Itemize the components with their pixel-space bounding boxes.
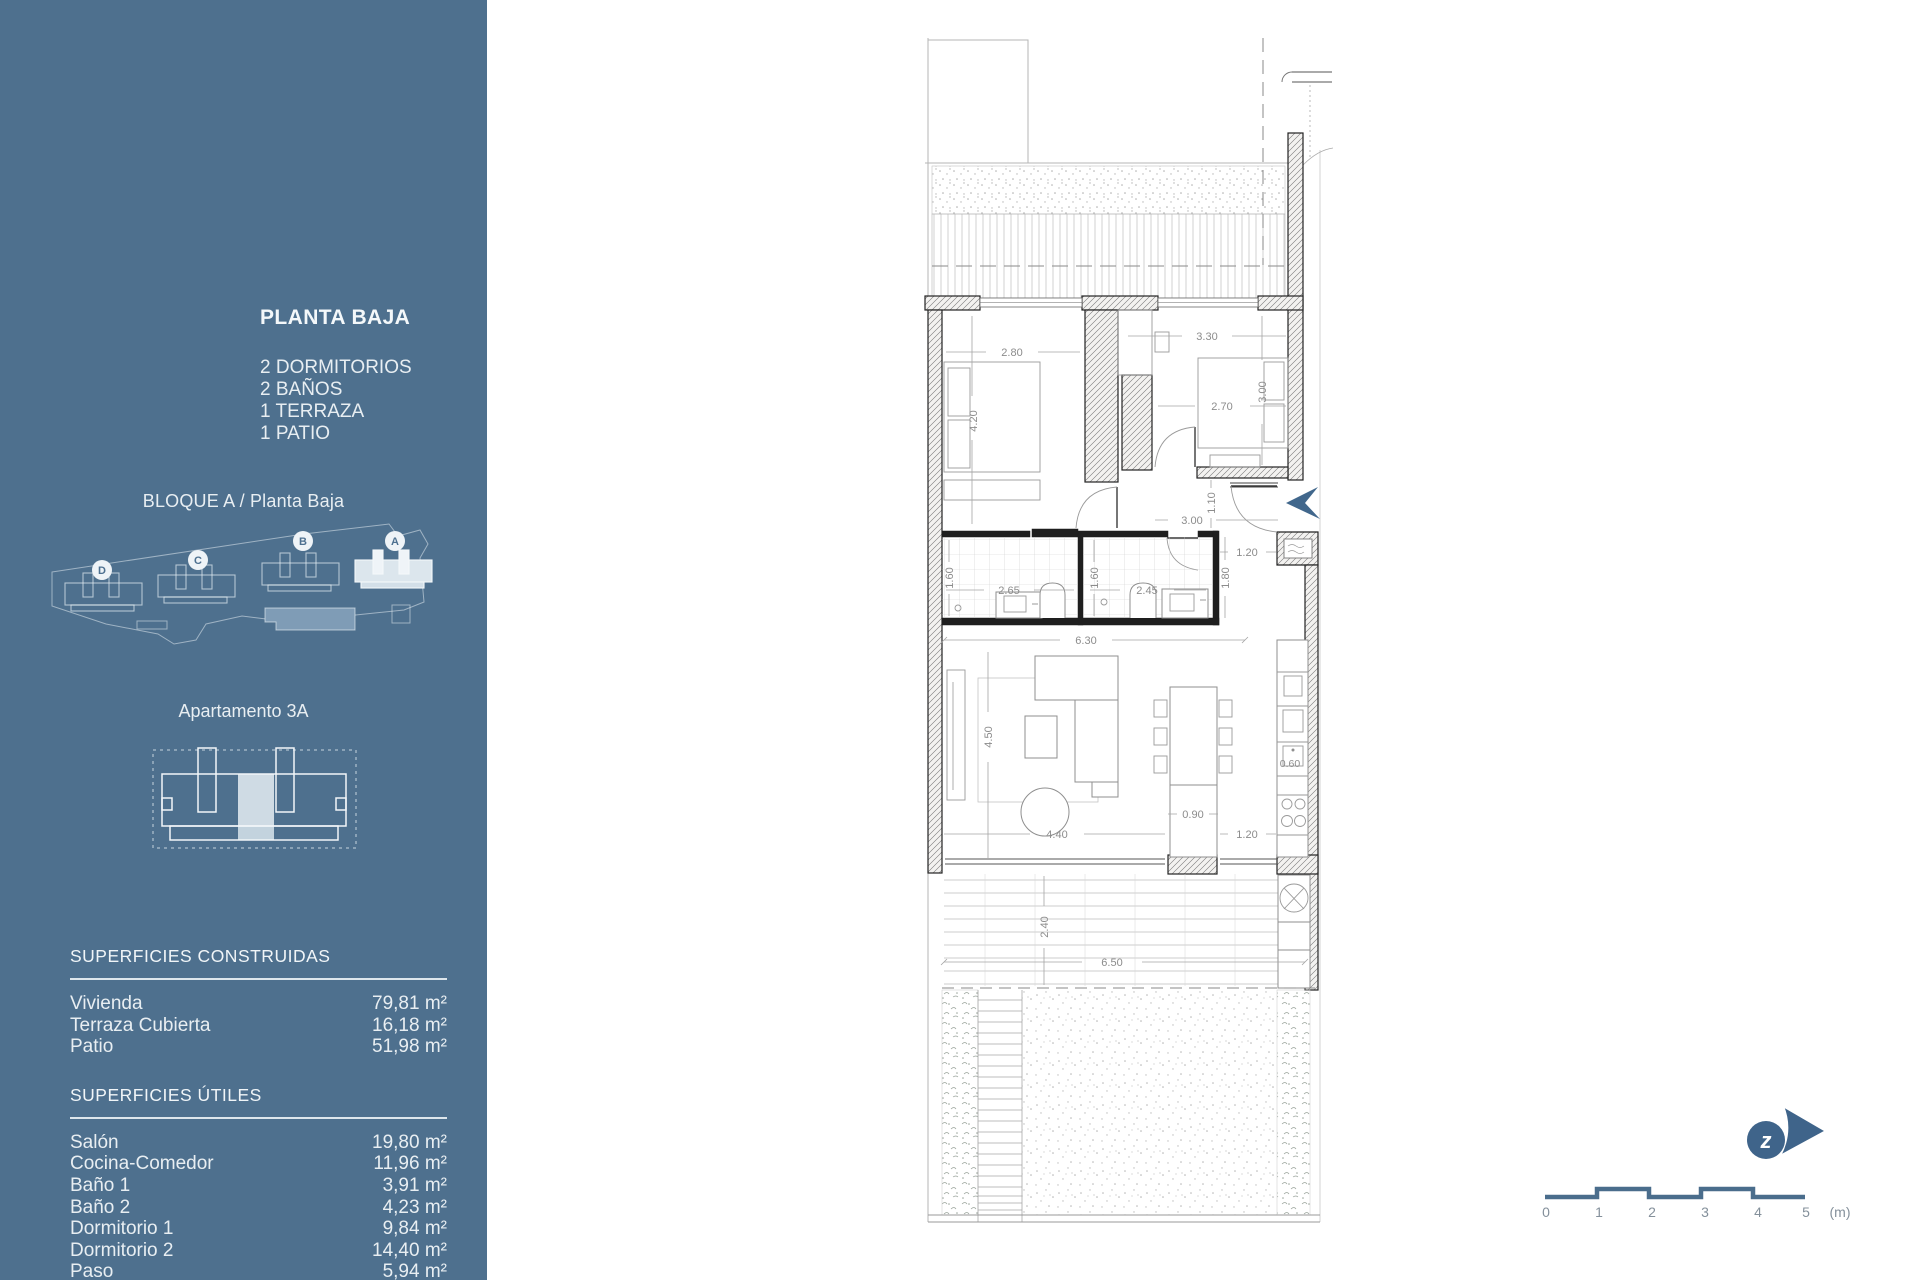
row-label: Dormitorio 1: [70, 1218, 173, 1240]
block-a-highlighted: [355, 550, 432, 588]
row-value: 4,23 m²: [383, 1197, 447, 1219]
section-heading-utiles: SUPERFICIES ÚTILES: [70, 1085, 447, 1119]
row-value: 19,80 m²: [372, 1132, 447, 1154]
dimension-label: 2.80: [1001, 347, 1022, 359]
shelf-bedroom1: [1155, 332, 1169, 352]
kitchen-island: [1170, 785, 1217, 857]
block-badge-d: D: [98, 565, 106, 577]
dimension-label: 1.80: [1220, 567, 1232, 588]
row-label: Salón: [70, 1132, 119, 1154]
dimension-label: 0.90: [1182, 809, 1203, 821]
surface-tables: SUPERFICIES CONSTRUIDAS Vivienda 79,81 m…: [70, 946, 447, 1283]
dimension-label: 2.40: [1039, 916, 1051, 937]
coffee-table: [1025, 716, 1057, 758]
dimension-label: 1.20: [1236, 547, 1257, 559]
feature-item: 1 PATIO: [260, 423, 412, 445]
construidas-rows: Vivienda 79,81 m² Terraza Cubierta 16,18…: [70, 993, 447, 1058]
entrance-arrow-icon: [1286, 487, 1320, 519]
bathroom-1: [942, 537, 1078, 618]
toilet: [1040, 583, 1065, 618]
svg-text:z: z: [1760, 1128, 1772, 1153]
dimension-label: 6.50: [1101, 957, 1122, 969]
table-row: Baño 1 3,91 m²: [70, 1175, 447, 1197]
highlighted-unit: [238, 774, 274, 826]
table-row: Vivienda 79,81 m²: [70, 993, 447, 1015]
terrace-utility: [1278, 875, 1310, 988]
row-value: 51,98 m²: [372, 1036, 447, 1058]
dimension-label: 1.60: [1089, 567, 1101, 588]
row-value: 16,18 m²: [372, 1015, 447, 1037]
terrace-deck: [944, 874, 1305, 986]
row-label: Vivienda: [70, 993, 143, 1015]
scale-label: 0: [1542, 1204, 1550, 1220]
dimension-label: 1.10: [1206, 492, 1218, 513]
dimension-label: 4.40: [1046, 829, 1067, 841]
table-row: Baño 2 4,23 m²: [70, 1197, 447, 1219]
bed-bedroom2: [944, 362, 1040, 500]
dimension-label: 1.20: [1236, 829, 1257, 841]
page-title: PLANTA BAJA: [260, 306, 412, 330]
dimension-label: 3.00: [1257, 381, 1269, 402]
dimension-label: 2.70: [1211, 401, 1232, 413]
outdoor-sink: [1277, 532, 1318, 565]
row-label: Cocina-Comedor: [70, 1153, 214, 1175]
apartment-label: Apartamento 3A: [0, 701, 487, 722]
row-value: 9,84 m²: [383, 1218, 447, 1240]
row-label: Baño 2: [70, 1197, 130, 1219]
dimension-label: 0.60: [1280, 758, 1301, 770]
dimension-label: 2.65: [998, 585, 1019, 597]
site-plot: [392, 605, 410, 623]
patio: [928, 990, 1320, 1222]
table-row: Cocina-Comedor 11,96 m²: [70, 1153, 447, 1175]
block-badge-a: A: [391, 536, 399, 548]
dining-table: [1154, 687, 1232, 785]
utiles-rows: Salón 19,80 m² Cocina-Comedor 11,96 m² B…: [70, 1132, 447, 1283]
table-row: Dormitorio 2 14,40 m²: [70, 1240, 447, 1262]
row-label: Dormitorio 2: [70, 1240, 173, 1262]
kitchen-units: [1277, 640, 1308, 857]
row-label: Terraza Cubierta: [70, 1015, 210, 1037]
walkway: [978, 990, 1022, 1222]
bathroom-2: [1083, 537, 1213, 618]
scale-label: 1: [1595, 1204, 1603, 1220]
section-heading-construidas: SUPERFICIES CONSTRUIDAS: [70, 946, 447, 980]
site-path: [137, 621, 167, 629]
dimension-label: 4.20: [968, 410, 980, 431]
scale-label: 4: [1754, 1204, 1762, 1220]
sidebar: PLANTA BAJA 2 DORMITORIOS 2 BAÑOS 1 TERR…: [0, 0, 487, 1280]
scale-label: 3: [1701, 1204, 1709, 1220]
block-c: [158, 565, 235, 603]
dimension-label: 3.00: [1181, 515, 1202, 527]
highlighted-unit-tray: [238, 826, 274, 840]
feature-item: 1 TERRAZA: [260, 401, 412, 423]
sliding-doors: [945, 859, 1277, 864]
site-plan-diagram: D C B A: [46, 512, 448, 654]
plan-header: PLANTA BAJA 2 DORMITORIOS 2 BAÑOS 1 TERR…: [260, 306, 412, 445]
dimension-label: 3.30: [1196, 331, 1217, 343]
dimension-label: 2.45: [1136, 585, 1157, 597]
pool: [265, 608, 355, 630]
north-arrow-icon: z: [1747, 1106, 1826, 1159]
dimension-label: 1.60: [944, 567, 956, 588]
row-label: Baño 1: [70, 1175, 130, 1197]
scale-label: 5: [1802, 1204, 1810, 1220]
row-value: 14,40 m²: [372, 1240, 447, 1262]
block-badge-c: C: [194, 555, 202, 567]
dimension-label: 6.30: [1075, 635, 1096, 647]
block-b: [262, 553, 339, 591]
block-badge-b: B: [299, 536, 307, 548]
table-row: Salón 19,80 m²: [70, 1132, 447, 1154]
feature-list: 2 DORMITORIOS 2 BAÑOS 1 TERRAZA 1 PATIO: [260, 357, 412, 445]
table-row: Dormitorio 1 9,84 m²: [70, 1218, 447, 1240]
row-value: 3,91 m²: [383, 1175, 447, 1197]
apartment-diagram: [150, 734, 360, 856]
scale-bar: 0 1 2 3 4 5 (m): [1542, 1189, 1850, 1220]
dimension-label: 4.50: [983, 726, 995, 747]
feature-item: 2 BAÑOS: [260, 379, 412, 401]
row-value: 11,96 m²: [373, 1153, 447, 1175]
block-label: BLOQUE A / Planta Baja: [0, 491, 487, 512]
table-row: Terraza Cubierta 16,18 m²: [70, 1015, 447, 1037]
row-label: Patio: [70, 1036, 113, 1058]
table-row: Patio 51,98 m²: [70, 1036, 447, 1058]
row-value: 79,81 m²: [372, 993, 447, 1015]
tv-unit: [947, 670, 965, 800]
scale-unit-label: (m): [1830, 1204, 1851, 1220]
scale-label: 2: [1648, 1204, 1656, 1220]
feature-item: 2 DORMITORIOS: [260, 357, 412, 379]
